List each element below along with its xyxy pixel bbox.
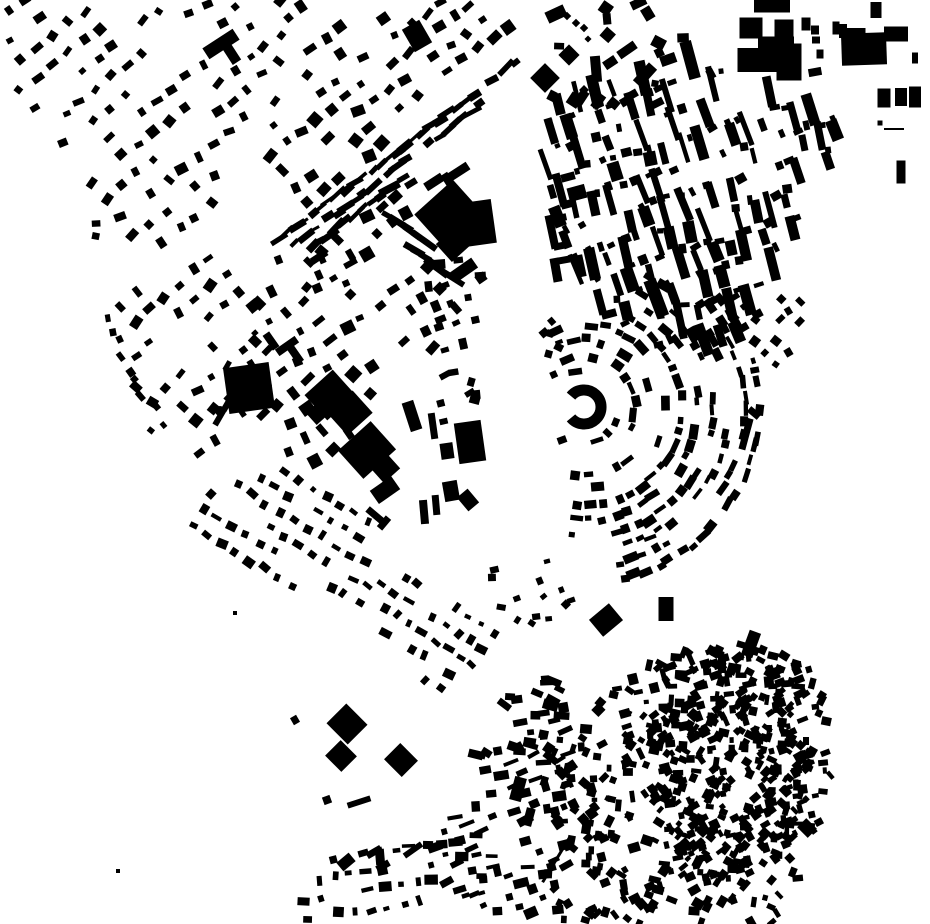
building-footprints bbox=[4, 0, 921, 924]
ring-building bbox=[571, 390, 601, 424]
figure-ground-map bbox=[0, 0, 930, 924]
map-canvas bbox=[0, 0, 930, 924]
